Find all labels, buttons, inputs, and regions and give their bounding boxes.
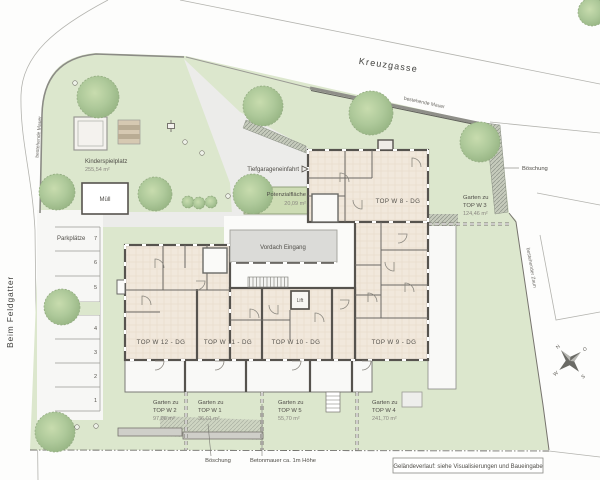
concrete-wall-2: [183, 432, 263, 439]
playground-area: 255,54 m²: [85, 167, 110, 173]
parking-space-3: 3: [94, 350, 97, 356]
loggia-west: [203, 248, 227, 273]
svg-text:TOP W 1: TOP W 1: [198, 408, 222, 414]
garden-terrace-w4: [402, 392, 422, 407]
garden-label-w4: Garten zu TOP W 4 241,70 m²: [372, 400, 397, 422]
concrete-wall-1: [118, 428, 182, 436]
lift-label: Lift: [297, 298, 304, 304]
parking-space-4: 4: [94, 326, 97, 332]
terrain-note: Geländeverlauf: siehe Visualisierungen u…: [393, 458, 543, 473]
svg-text:TOP W 2: TOP W 2: [153, 408, 177, 414]
svg-text:Garten zu: Garten zu: [278, 400, 303, 406]
svg-text:Garten zu: Garten zu: [153, 400, 178, 406]
potential-name: Potenzialfläche: [267, 192, 306, 198]
site-plan-svg: Kreuzgasse Beim Feldgatter bestehende Ma…: [0, 0, 600, 480]
unit-label-w11: TOP W 11 - DG: [204, 339, 252, 346]
balcony-west: [117, 280, 125, 294]
parking-space-5: 5: [94, 285, 97, 291]
svg-text:124,46 m²: 124,46 m²: [463, 211, 488, 217]
unit-label-w9: TOP W 9 - DG: [372, 339, 417, 346]
picnic-table: [118, 120, 140, 144]
svg-text:55,70 m²: 55,70 m²: [278, 416, 300, 422]
svg-text:241,70 m²: 241,70 m²: [372, 416, 397, 422]
playground-name: Kinderspielplatz: [85, 159, 127, 165]
parking-space-7: 7: [94, 236, 97, 242]
unit-label-w12: TOP W 12 - DG: [137, 339, 186, 346]
east-terrace: [428, 222, 456, 389]
entrance-stairs: [248, 277, 288, 287]
svg-text:TOP W 3: TOP W 3: [463, 203, 487, 209]
garage-entry-label: Tiefgarageneinfahrt: [247, 167, 299, 173]
garden-label-w1: Garten zu TOP W 1 36,01 m²: [198, 400, 223, 422]
parking-space-1: 1: [94, 398, 97, 404]
site-plan-page: Kreuzgasse Beim Feldgatter bestehende Ma…: [0, 0, 600, 480]
svg-text:Geländeverlauf: siehe Visualis: Geländeverlauf: siehe Visualisierungen u…: [393, 464, 543, 470]
canopy-label: Vordach Eingang: [260, 245, 306, 251]
street-label-beim-feldgatter: Beim Feldgatter: [5, 276, 15, 348]
parking-space-6: 6: [94, 260, 97, 266]
svg-text:36,01 m²: 36,01 m²: [198, 416, 220, 422]
parking-label: Parkplätze: [57, 236, 86, 242]
annotation-slope-bottom: Böschung: [205, 458, 231, 464]
loggia-north: [312, 194, 338, 222]
parking-space-2: 2: [94, 374, 97, 380]
svg-text:97,06 m²: 97,06 m²: [153, 416, 175, 422]
svg-text:TOP W 4: TOP W 4: [372, 408, 396, 414]
svg-text:Garten zu: Garten zu: [372, 400, 397, 406]
loggia-band: [125, 360, 372, 392]
potential-area-value: 20,09 m²: [284, 201, 306, 207]
annotation-concrete-wall: Betonmauer ca. 1m Höhe: [250, 458, 316, 464]
waste-label: Müll: [99, 197, 110, 203]
annotation-slope-right: Böschung: [522, 166, 548, 172]
svg-text:Garten zu: Garten zu: [198, 400, 223, 406]
svg-text:Garten zu: Garten zu: [463, 195, 488, 201]
svg-text:TOP W 5: TOP W 5: [278, 408, 302, 414]
roof-box: [378, 140, 393, 150]
sandbox: [74, 117, 107, 150]
garden-stairs: [326, 392, 340, 412]
garden-label-w5: Garten zu TOP W 5 55,70 m²: [278, 400, 303, 422]
unit-label-w8: TOP W 8 - DG: [376, 198, 421, 205]
garden-label-w2: Garten zu TOP W 2 97,06 m²: [153, 400, 178, 422]
unit-label-w10: TOP W 10 - DG: [272, 339, 321, 346]
garden-label-w3: Garten zu TOP W 3 124,46 m²: [463, 195, 488, 217]
